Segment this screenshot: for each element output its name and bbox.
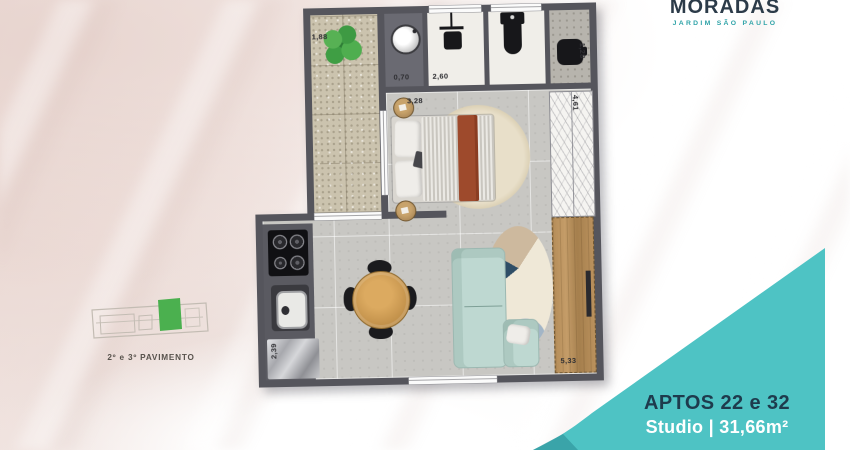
marketing-slide: MORADAS JARDIM SÃO PAULO 2º e 3º PAVIMEN…: [0, 0, 850, 450]
sofa-pillow: [506, 323, 532, 345]
highlighted-unit-green: [158, 298, 182, 331]
dim-balcony: 1,88: [312, 32, 328, 41]
dim-bathroom: 2,60: [432, 72, 448, 81]
toilet-flush-button: [510, 15, 514, 19]
brand-subtitle: JARDIM SÃO PAULO: [660, 20, 790, 27]
brand-logo: MORADAS JARDIM SÃO PAULO: [660, 0, 790, 27]
window-shower: [429, 5, 481, 13]
stove-icon: [268, 230, 309, 277]
brand-name: MORADAS: [660, 0, 790, 18]
dim-living: 5,33: [560, 356, 576, 365]
dim-bedroom: 3,28: [407, 96, 423, 105]
dim-washbasin: 1,28: [578, 43, 587, 59]
window-toilet: [491, 4, 541, 12]
key-plan-caption: 2º e 3º PAVIMENTO: [86, 353, 216, 362]
key-plan: 2º e 3º PAVIMENTO: [86, 292, 216, 362]
building-outline-icon: [86, 292, 216, 344]
balcony-sliding-door: [314, 212, 381, 220]
wall-step: [255, 213, 314, 221]
kitchen-sink-icon: [276, 291, 308, 330]
unit-apartments-label: APTOS 22 e 32: [592, 392, 842, 415]
dim-wardrobe: 4,61: [571, 95, 580, 111]
dim-kitchen: 2,39: [269, 343, 278, 359]
unit-type-area-label: Studio | 31,66m²: [592, 417, 842, 438]
shower-head-icon: [444, 31, 462, 49]
tv-icon: [586, 271, 592, 317]
sofa: [451, 247, 508, 368]
unit-info: APTOS 22 e 32 Studio | 31,66m²: [592, 392, 842, 438]
dim-laundry: 0,70: [393, 72, 409, 81]
floor-plan: 1,88 0,70 2,60 1,28 3,28 4,61 2,39 5,33: [251, 2, 604, 387]
throw-blanket: [457, 115, 479, 201]
toilet-bowl-icon: [503, 24, 522, 54]
shower-bar-icon: [439, 26, 463, 30]
